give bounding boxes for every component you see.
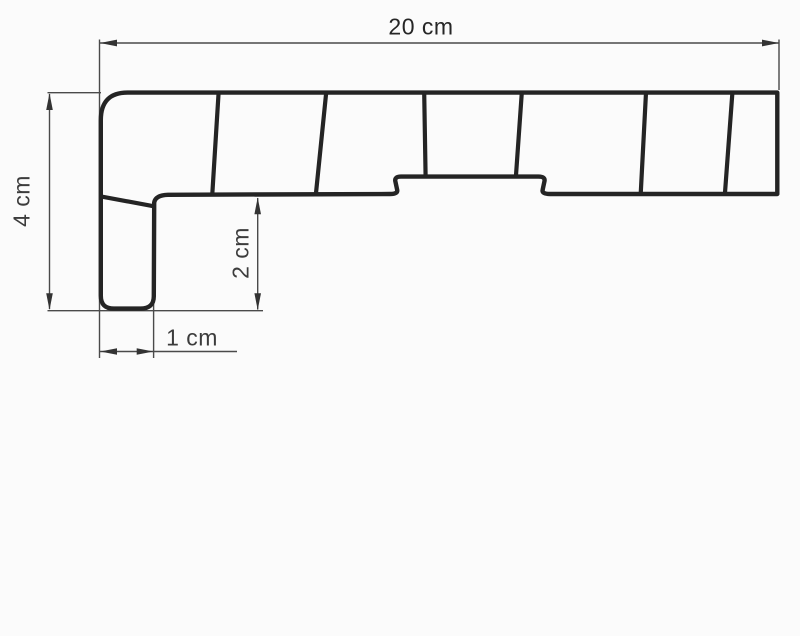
dimension-label-total-height: 4 cm [11,175,34,227]
arrow-height-top [46,93,53,110]
arrow-width-left [100,40,117,47]
dimension-label-front-width: 1 cm [166,327,218,350]
technical-drawing-canvas: 20 cm 4 cm 2 cm 1 cm [0,0,800,636]
arrow-width-right [762,40,779,47]
arrow-height-bottom [46,293,53,310]
arrow-front-width-right [137,348,154,355]
profile-outline [101,93,778,309]
profile-drawing-svg [0,0,800,636]
profile-linework [101,93,778,309]
arrow-front-width-left [100,348,117,355]
arrow-front-height-bottom [254,293,261,310]
nose-inner-wall [101,196,154,206]
arrow-front-height-top [254,198,261,215]
dimension-label-total-width: 20 cm [388,16,453,39]
dimension-label-front-height: 2 cm [230,227,253,279]
